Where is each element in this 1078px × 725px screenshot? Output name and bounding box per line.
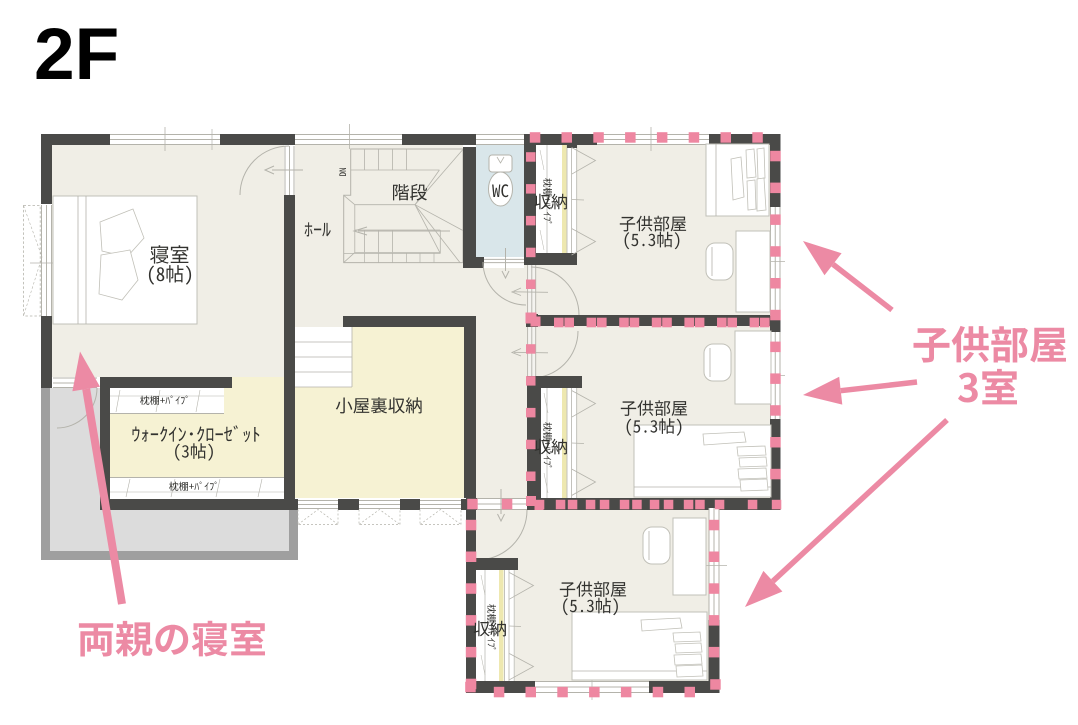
svg-text:2F: 2F (34, 14, 119, 95)
